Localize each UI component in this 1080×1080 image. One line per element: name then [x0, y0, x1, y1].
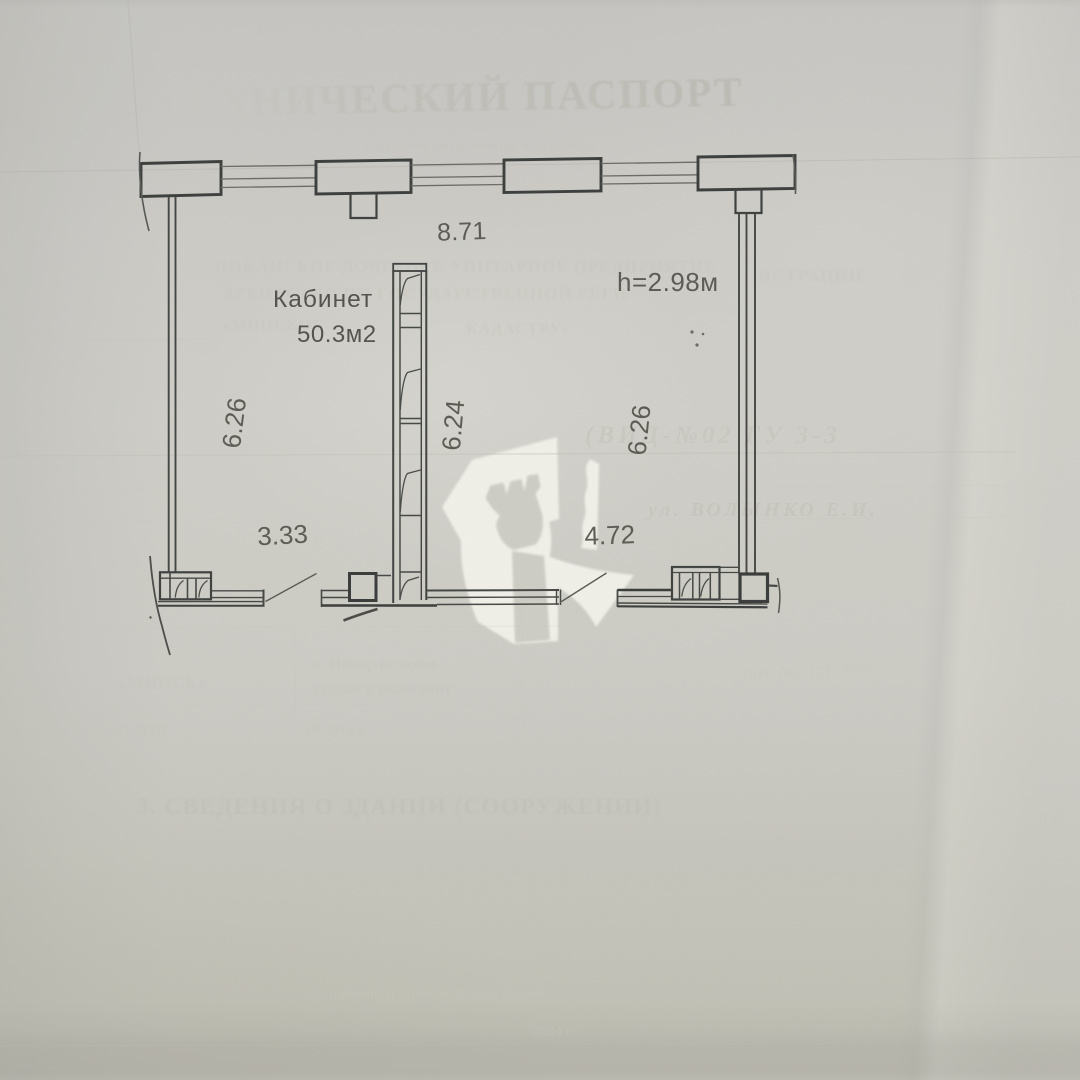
svg-text:3.33: 3.33 [256, 519, 308, 552]
svg-text:ЛИКАНСКОЕ ДОЧЕРНЕЕ УНИТАРНОЕ П: ЛИКАНСКОЕ ДОЧЕРНЕЕ УНИТАРНОЕ ПРЕДПРИЯТИЕ [215, 257, 716, 276]
svg-text:06/АЛ/ЮЛИВ: 06/АЛ/ЮЛИВ [60, 720, 167, 739]
svg-text:6.26: 6.26 [621, 403, 656, 456]
svg-text:в. Номер исходно-: в. Номер исходно- [312, 656, 441, 673]
svg-text:6: 6 [582, 941, 590, 957]
svg-text:(ВИД-№02 ГУ 3-3: (ВИД-№02 ГУ 3-3 [585, 422, 841, 449]
svg-text:Кабинет: Кабинет [273, 286, 373, 313]
svg-text:2004 г.: 2004 г. [532, 1024, 574, 1040]
svg-text:508/С-16105: 508/С-16105 [505, 890, 584, 906]
svg-text:пол. №2 С3: пол. №2 С3 [744, 662, 830, 682]
svg-text:«МИНСК»: «МИНСК» [118, 673, 207, 693]
svg-text:АГЕНТСТВО ПО ГОСУДАРСТВЕННОЙ Р: АГЕНТСТВО ПО ГОСУДАРСТВЕННОЙ РЕГИ [222, 284, 628, 303]
svg-text:h=2.98м: h=2.98м [617, 267, 719, 297]
svg-text:140,: 140, [1042, 811, 1067, 826]
svg-text:ИСТРАЦИИ: ИСТРАЦИИ [758, 266, 863, 285]
svg-text:здания и выполнит: здания и выполнит [312, 681, 452, 698]
svg-text:ул. ВОЛЫНКО Е.И.: ул. ВОЛЫНКО Е.И. [646, 499, 879, 521]
svg-text:8.71: 8.71 [437, 217, 487, 247]
svg-text:административные фонды здания: административные фонды здания [330, 986, 545, 1002]
svg-text:пол.: пол. [845, 660, 873, 676]
svg-text:3. СВЕДЕНИЯ О ЗДАНИИ (СООРУЖЕН: 3. СВЕДЕНИЯ О ЗДАНИИ (СООРУЖЕНИИ) [137, 794, 662, 819]
svg-text:6.26: 6.26 [216, 396, 252, 450]
svg-text:50.3м2: 50.3м2 [297, 321, 377, 348]
svg-text:«МИНСКОЕ: «МИНСКОЕ [222, 317, 324, 334]
svg-text:составлен по состоянию на 5 но: составлен по состоянию на 5 ноября [365, 139, 595, 154]
svg-text:ТЕХНИЧЕСКИЙ ПАСПОРТ: ТЕХНИЧЕСКИЙ ПАСПОРТ [160, 68, 743, 125]
svg-text:4.72: 4.72 [584, 519, 636, 551]
svg-text:КАДАСТРУ»: КАДАСТРУ» [466, 321, 570, 338]
svg-text:10. Этаж: 10. Этаж [304, 722, 367, 739]
svg-text:6.24: 6.24 [436, 399, 470, 452]
